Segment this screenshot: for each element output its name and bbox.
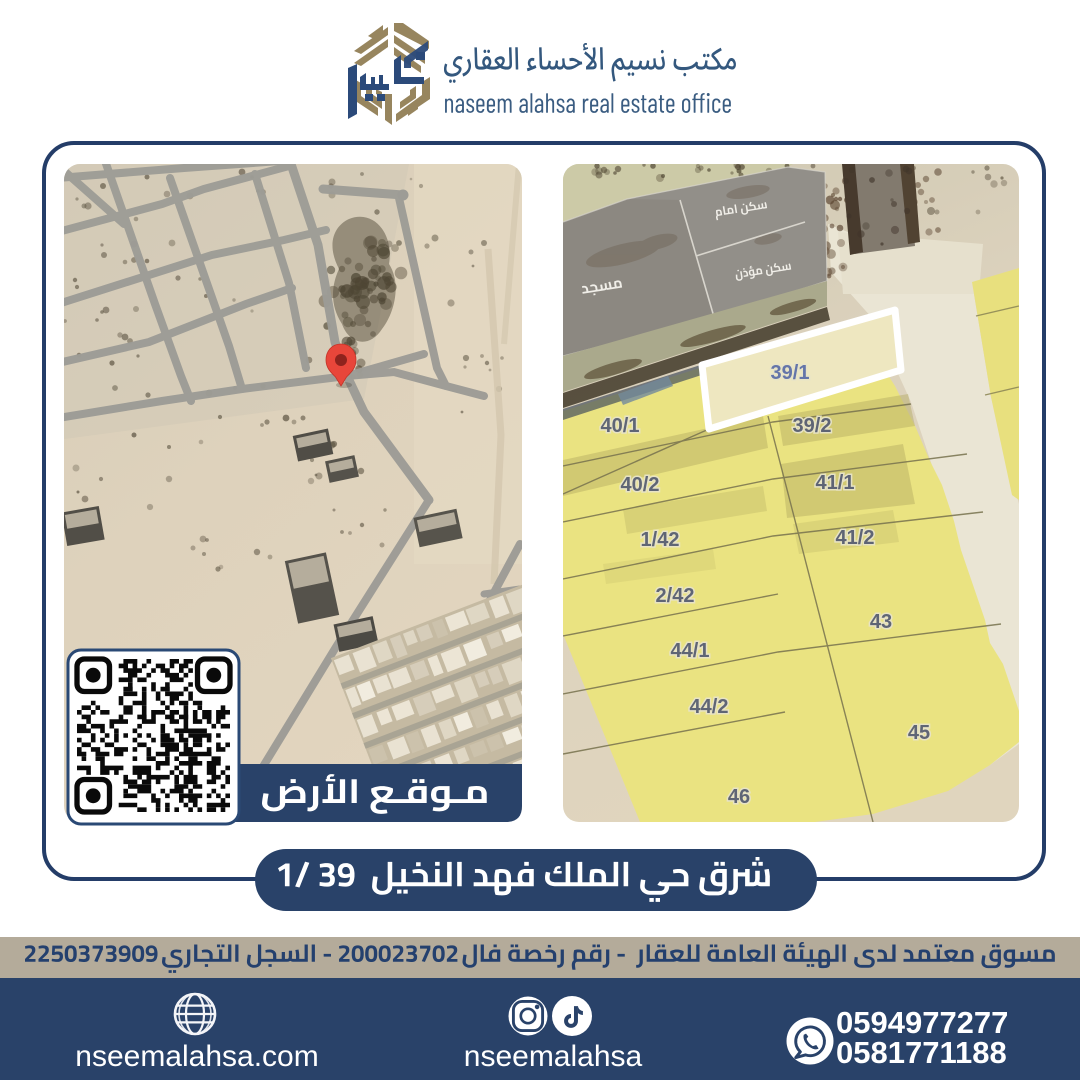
svg-text:0581771188: 0581771188	[836, 1035, 1007, 1070]
svg-text:nseemalahsa: nseemalahsa	[464, 1040, 643, 1073]
svg-text:nseemalahsa.com: nseemalahsa.com	[75, 1040, 318, 1073]
